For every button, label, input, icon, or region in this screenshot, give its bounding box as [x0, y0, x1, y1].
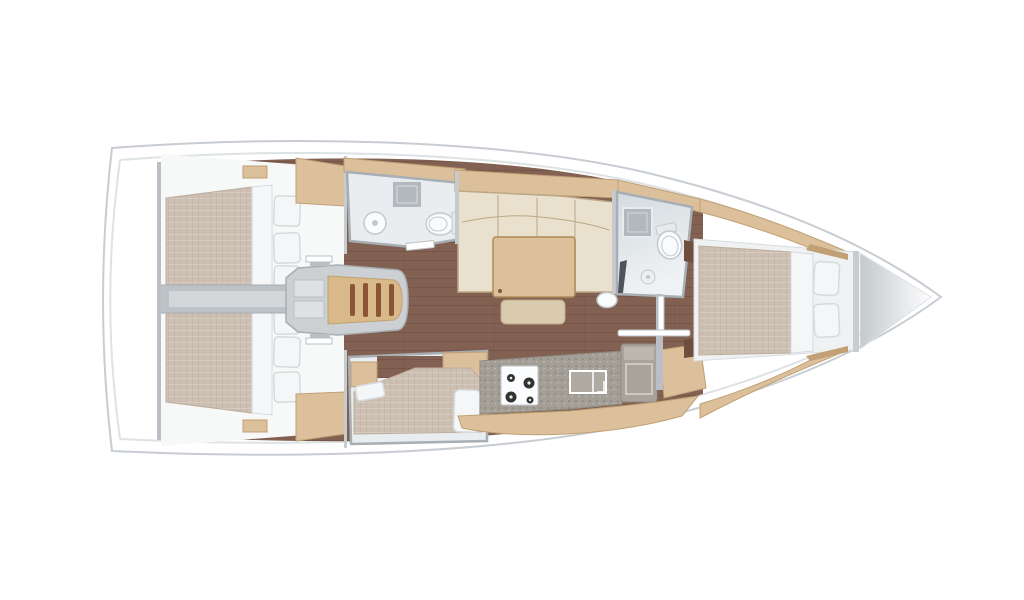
shower-column — [623, 208, 652, 237]
cabin-door — [306, 256, 332, 262]
sink-drain — [372, 220, 378, 226]
bed-sheet — [252, 185, 272, 288]
saloon-table — [493, 237, 575, 297]
bed-mattress — [166, 312, 252, 413]
drain-center — [646, 275, 650, 279]
cabin-door-handle — [310, 334, 330, 338]
stern-bulkhead — [157, 162, 161, 440]
shelf — [243, 166, 267, 178]
stair-slat — [389, 284, 394, 316]
sofa-left-wall — [455, 171, 459, 244]
yacht-floorplan-image: Sailing yacht interior layout — top-down… — [0, 0, 1024, 600]
bed-sheet — [791, 252, 813, 353]
bathroom-door — [658, 296, 664, 332]
bed-sheet — [252, 312, 272, 415]
cabin-door — [306, 338, 332, 344]
bench-stool — [501, 300, 565, 324]
wardrobe — [296, 158, 345, 206]
bow-bulkhead — [853, 251, 859, 352]
stair-slat — [376, 283, 381, 317]
pouf — [597, 293, 617, 308]
table-peg — [498, 289, 502, 293]
pillow — [273, 337, 300, 368]
entry-step — [294, 280, 324, 297]
stair-slat — [350, 284, 355, 316]
shelf — [243, 420, 267, 432]
engine-compartment — [160, 285, 296, 313]
pillow — [813, 261, 840, 295]
floorplan-svg: Sailing yacht interior layout — top-down… — [0, 0, 1024, 600]
fridge-top — [624, 347, 654, 360]
stair-slat — [363, 283, 368, 317]
grab-rail — [618, 330, 690, 336]
wardrobe — [296, 392, 345, 441]
bed-mattress — [166, 187, 252, 288]
engine-hatch — [169, 291, 288, 307]
pillow — [273, 233, 300, 264]
bed-mattress — [699, 246, 791, 355]
cabin-wall — [344, 350, 347, 448]
side-berth-cabin — [349, 351, 487, 444]
companionway — [286, 256, 408, 344]
aft-head — [344, 158, 467, 250]
cabin-door-handle — [310, 262, 330, 266]
galley-sink — [570, 371, 606, 393]
toilet-bowl — [426, 213, 454, 235]
entry-step — [294, 301, 324, 318]
pillow — [813, 303, 840, 337]
